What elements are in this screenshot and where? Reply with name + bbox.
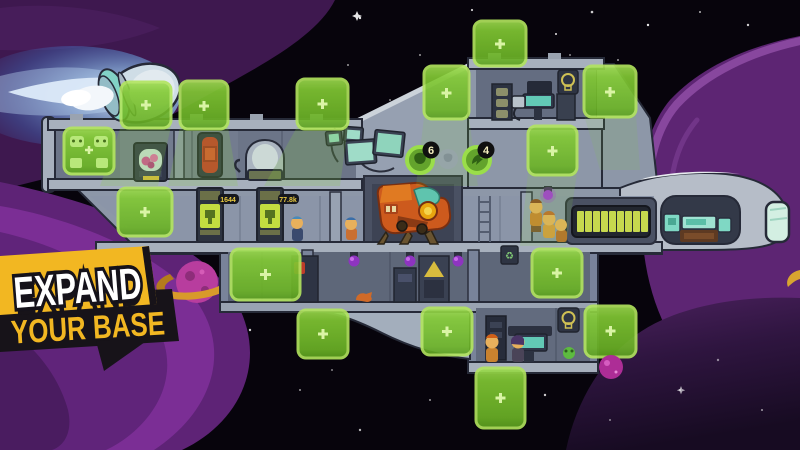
svg-text:6: 6 (428, 145, 434, 157)
svg-text:♻: ♻ (505, 251, 514, 262)
svg-text:77.8k: 77.8k (279, 197, 297, 204)
svg-text:4: 4 (483, 145, 490, 157)
svg-text:1644: 1644 (220, 197, 236, 204)
